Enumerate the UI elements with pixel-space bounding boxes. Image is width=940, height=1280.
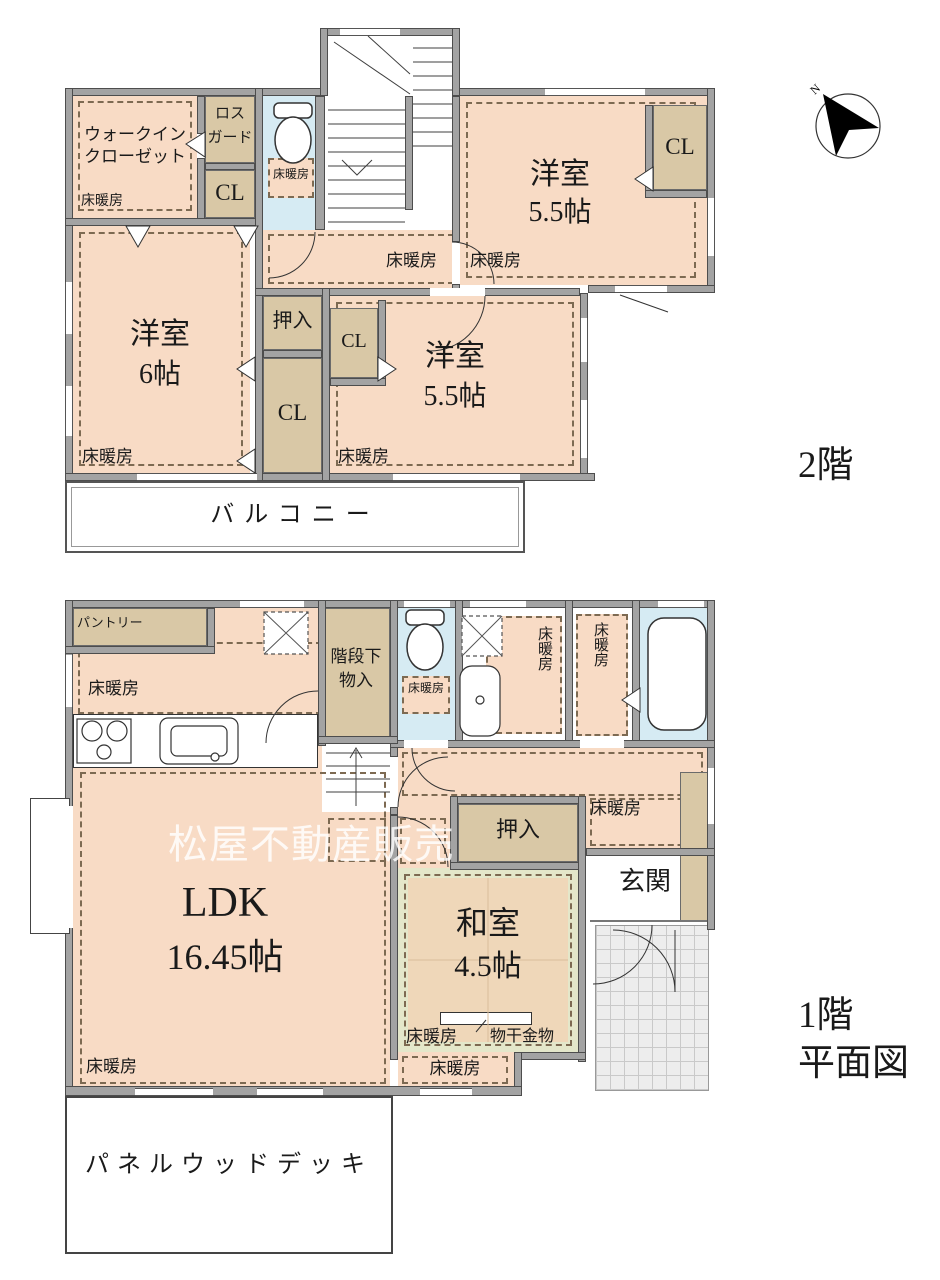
f2-wic-heating-label: 床暖房 (81, 194, 123, 209)
f1-washroom-heating-label: 床暖房 (536, 626, 551, 671)
wall (578, 796, 586, 1062)
f1-changing-heating-label: 床暖房 (592, 622, 607, 667)
wall (65, 218, 263, 226)
f2-lossguard-label-line2: ガード (205, 130, 255, 147)
wall (65, 646, 215, 654)
f2-ne-heating-label: 床暖房 (470, 252, 521, 271)
f2-bedroom-center-size: 5.5帖 (395, 382, 515, 413)
f1-pantry-label: パントリー (77, 616, 143, 630)
f1-deck-label: パネルウッドデッキ (65, 1152, 393, 1178)
f2-wic-label-line1: ウォークイン (75, 126, 195, 145)
f1-hall-heating-area-a (402, 752, 703, 796)
door-gap (404, 740, 448, 748)
f1-washitsu-heating-label: 床暖房 (406, 1028, 457, 1047)
floorplan-canvas: ウォークイン クローゼット 床暖房 ロス ガード CL 床暖房 床暖房 洋室 5… (0, 0, 940, 1280)
f2-hall-heating-label: 床暖房 (386, 252, 437, 271)
wall (255, 288, 580, 296)
f1-washitsu-name: 和室 (428, 906, 548, 941)
f1-strip-heating-label: 床暖房 (402, 1060, 508, 1079)
f2-staircase (328, 36, 452, 230)
door-gap (430, 288, 485, 296)
wall (586, 848, 715, 856)
wall (318, 736, 398, 744)
wall (565, 600, 573, 748)
window (707, 768, 715, 824)
f2-closet-ne-label: CL (653, 134, 707, 159)
watermark-text: 松屋不動産販売 (168, 812, 455, 870)
door-gap (390, 757, 398, 807)
f1-shoe-cabinet (680, 772, 708, 922)
wall (320, 28, 328, 96)
door-gap (580, 740, 624, 748)
compass-icon: N (807, 81, 880, 158)
f1-understair-storage-label-line2: 物入 (322, 672, 390, 691)
f2-lossguard-label-line1: ロス (205, 106, 255, 123)
f2-toilet-heating-label: 床暖房 (266, 168, 316, 181)
wall (452, 96, 460, 242)
f1-ldk-heating-label: 床暖房 (86, 1058, 137, 1077)
f2-balcony-label: バルコニー (65, 502, 525, 528)
f2-center-heating-label: 床暖房 (338, 448, 389, 467)
f1-toilet-heating-label: 床暖房 (400, 682, 452, 695)
f2-bedroom-ne-size: 5.5帖 (495, 198, 625, 229)
window (707, 198, 715, 256)
f1-bay-window (30, 798, 70, 934)
wall (315, 96, 325, 230)
wall (514, 1052, 586, 1060)
f1-kitchen-heating-label: 床暖房 (88, 680, 139, 699)
wall (450, 796, 586, 804)
f1-genkan-label: 玄関 (595, 868, 695, 897)
f2-closet-vertical-label: CL (263, 400, 322, 425)
floor2-title: 2階 (798, 446, 854, 487)
wall (645, 105, 653, 198)
wall (707, 600, 715, 930)
f2-bedroom-ne-name: 洋室 (500, 158, 620, 191)
floor1-title: 1階 (798, 996, 854, 1037)
wall (405, 96, 413, 210)
f1-entrance-porch-tiles (595, 925, 709, 1091)
compass-north-label: N (807, 81, 823, 97)
wall (255, 88, 263, 481)
f1-bathroom (640, 608, 707, 740)
f1-understair-storage-label-line1: 階段下 (322, 648, 390, 667)
window (580, 318, 588, 362)
wall (450, 862, 586, 870)
f2-closet-small-label: CL (330, 330, 378, 352)
window (65, 282, 73, 334)
f1-oshiire-label: 押入 (458, 818, 578, 842)
wall (205, 163, 255, 170)
wall (197, 158, 205, 226)
f2-bedroom-west-size: 6帖 (110, 360, 210, 391)
wall (330, 378, 386, 386)
window (257, 1088, 323, 1096)
wall (452, 28, 460, 96)
f1-ldk-name: LDK (160, 880, 290, 926)
f2-bedroom-west-name: 洋室 (110, 318, 210, 351)
f1-monohoshi-label: 物干金物 (490, 1028, 554, 1046)
wall (390, 600, 398, 757)
window (580, 400, 588, 458)
wall (378, 300, 386, 386)
wall (65, 88, 322, 96)
window (658, 600, 704, 608)
window (137, 473, 257, 481)
bay-window-opening (65, 806, 73, 928)
f1-kitchen-counter (73, 714, 318, 768)
window (615, 285, 667, 293)
f1-washitsu-size: 4.5帖 (423, 950, 553, 983)
f2-closet1-label: CL (205, 180, 255, 205)
f2-west-heating-label: 床暖房 (82, 448, 133, 467)
window (65, 386, 73, 436)
f2-bedroom-center-name: 洋室 (400, 340, 510, 373)
window (545, 88, 645, 96)
window (420, 1088, 472, 1096)
window (340, 28, 400, 36)
wall (645, 190, 707, 198)
wall (632, 600, 640, 748)
wall (263, 350, 322, 358)
floor1-subtitle: 平面図 (798, 1044, 909, 1085)
window (135, 1088, 213, 1096)
window (240, 600, 304, 608)
wall (322, 288, 330, 481)
window (404, 600, 450, 608)
f2-oshiire-label: 押入 (263, 310, 322, 332)
f1-toilet-room (398, 608, 455, 740)
window (65, 655, 73, 707)
f1-monohoshi-bar (440, 1012, 532, 1025)
door-gap (452, 242, 460, 284)
wall (197, 96, 205, 134)
wall (455, 600, 463, 748)
window (470, 600, 526, 608)
f1-ldk-size: 16.45帖 (140, 938, 310, 978)
wall (707, 88, 715, 293)
f2-wic-label-line2: クローゼット (75, 148, 195, 167)
f1-genkan-step-line (590, 920, 715, 922)
window (393, 473, 520, 481)
f1-hall-heating-label: 床暖房 (590, 800, 641, 819)
